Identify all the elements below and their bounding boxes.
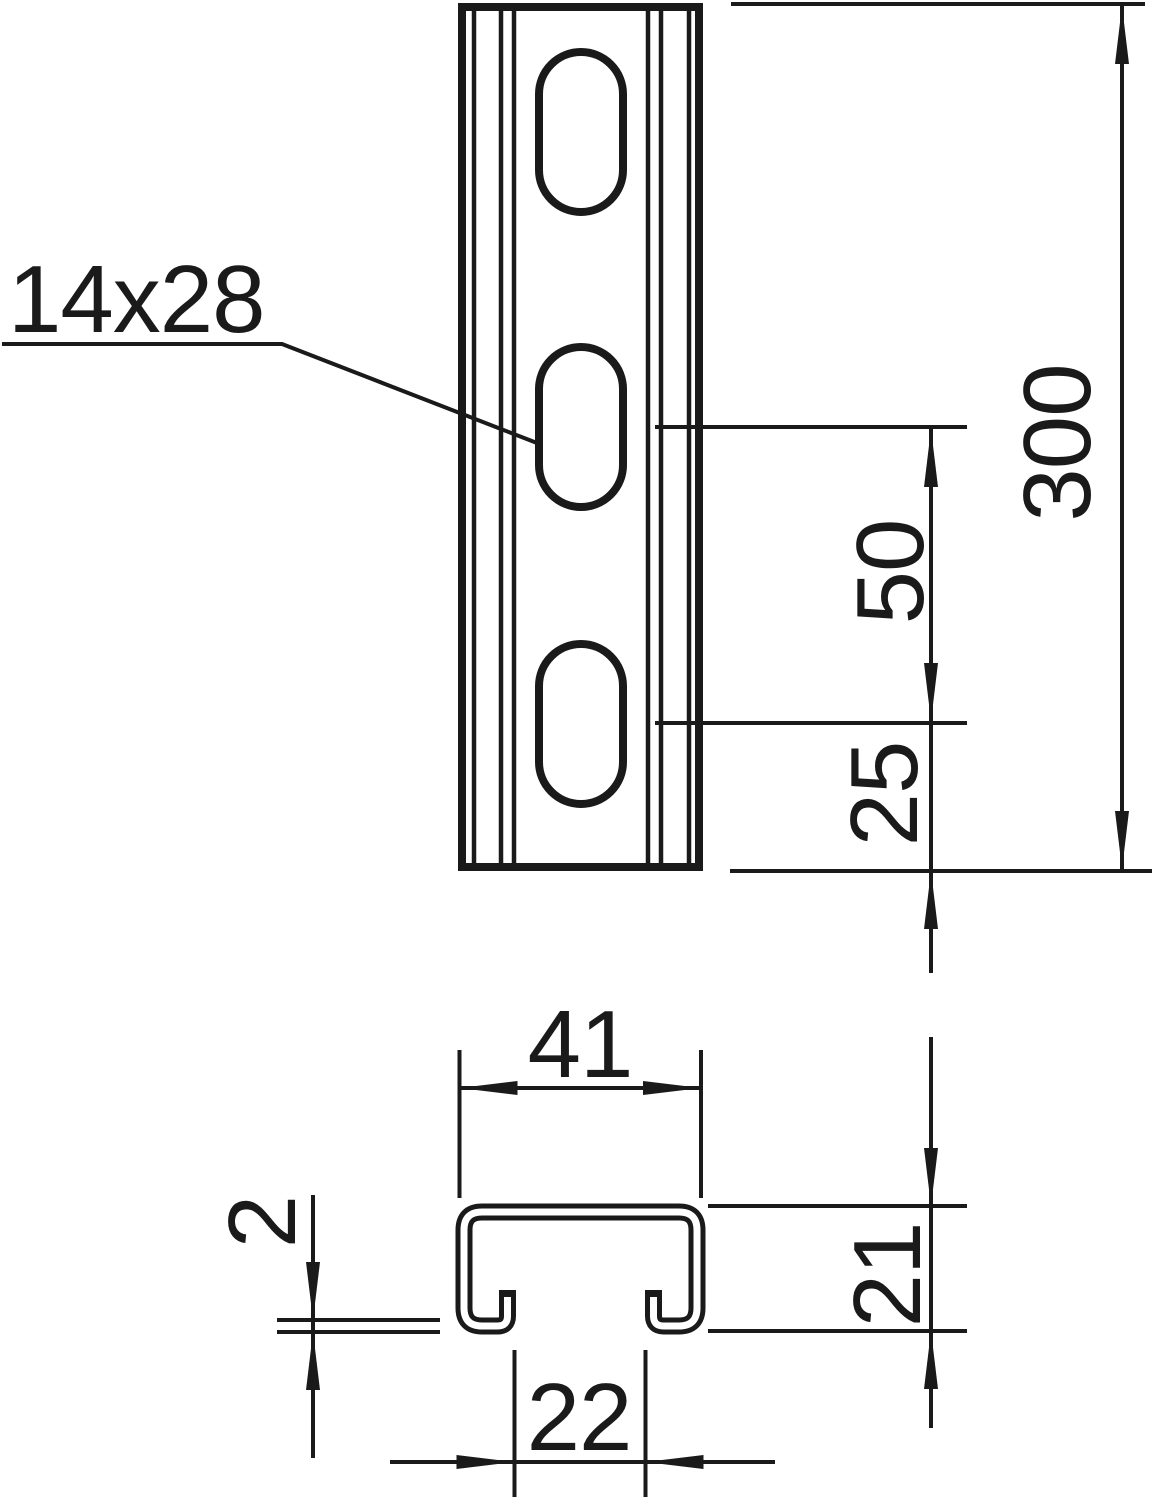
technical-drawing-page: 14x28 300 50 25 41 (0, 0, 1158, 1500)
arrowhead-down (1115, 811, 1129, 869)
dim-value-total-length: 300 (1004, 364, 1111, 521)
arrowhead-up (924, 871, 938, 929)
slot-bottom (539, 644, 623, 804)
arrowhead-down (924, 1148, 938, 1206)
slot-size-label: 14x28 (8, 246, 265, 353)
arrowhead-down (306, 1262, 320, 1320)
dimension-profile-height: 21 (708, 1037, 967, 1428)
arrowhead-left (460, 1081, 518, 1095)
arrowhead-right (457, 1455, 515, 1469)
dim-value-material-thickness: 2 (209, 1196, 316, 1248)
dim-value-slot-pitch: 50 (837, 520, 944, 625)
dimension-slot-opening: 22 (390, 1350, 775, 1497)
dimension-material-thickness: 2 (209, 1195, 440, 1458)
cross-section-view (464, 1212, 697, 1326)
profile-metal-inner-contour (464, 1212, 697, 1326)
dim-value-slot-end-offset: 25 (831, 742, 938, 847)
arrowhead-down (924, 663, 938, 721)
leader-line (2, 344, 537, 443)
arrowhead-up (1115, 6, 1129, 64)
arrowhead-up (306, 1332, 320, 1390)
dim-value-outer-width: 41 (528, 991, 633, 1098)
arrowhead-right (643, 1081, 701, 1095)
front-view (462, 7, 699, 867)
arrowhead-left (646, 1455, 704, 1469)
profile-metal-outer-contour (464, 1212, 697, 1326)
slot-top (539, 52, 623, 212)
dim-value-profile-height: 21 (834, 1223, 941, 1328)
slot-size-callout: 14x28 (2, 246, 537, 443)
dimension-total-length: 300 (730, 4, 1152, 871)
strut-rail-drawing: 14x28 300 50 25 41 (0, 0, 1158, 1500)
arrowhead-up (924, 1331, 938, 1389)
arrowhead-up (924, 429, 938, 487)
slot-middle (539, 347, 623, 507)
dim-value-slot-opening: 22 (527, 1364, 632, 1471)
rail-outline (462, 7, 699, 867)
dimension-outer-width: 41 (460, 991, 702, 1198)
